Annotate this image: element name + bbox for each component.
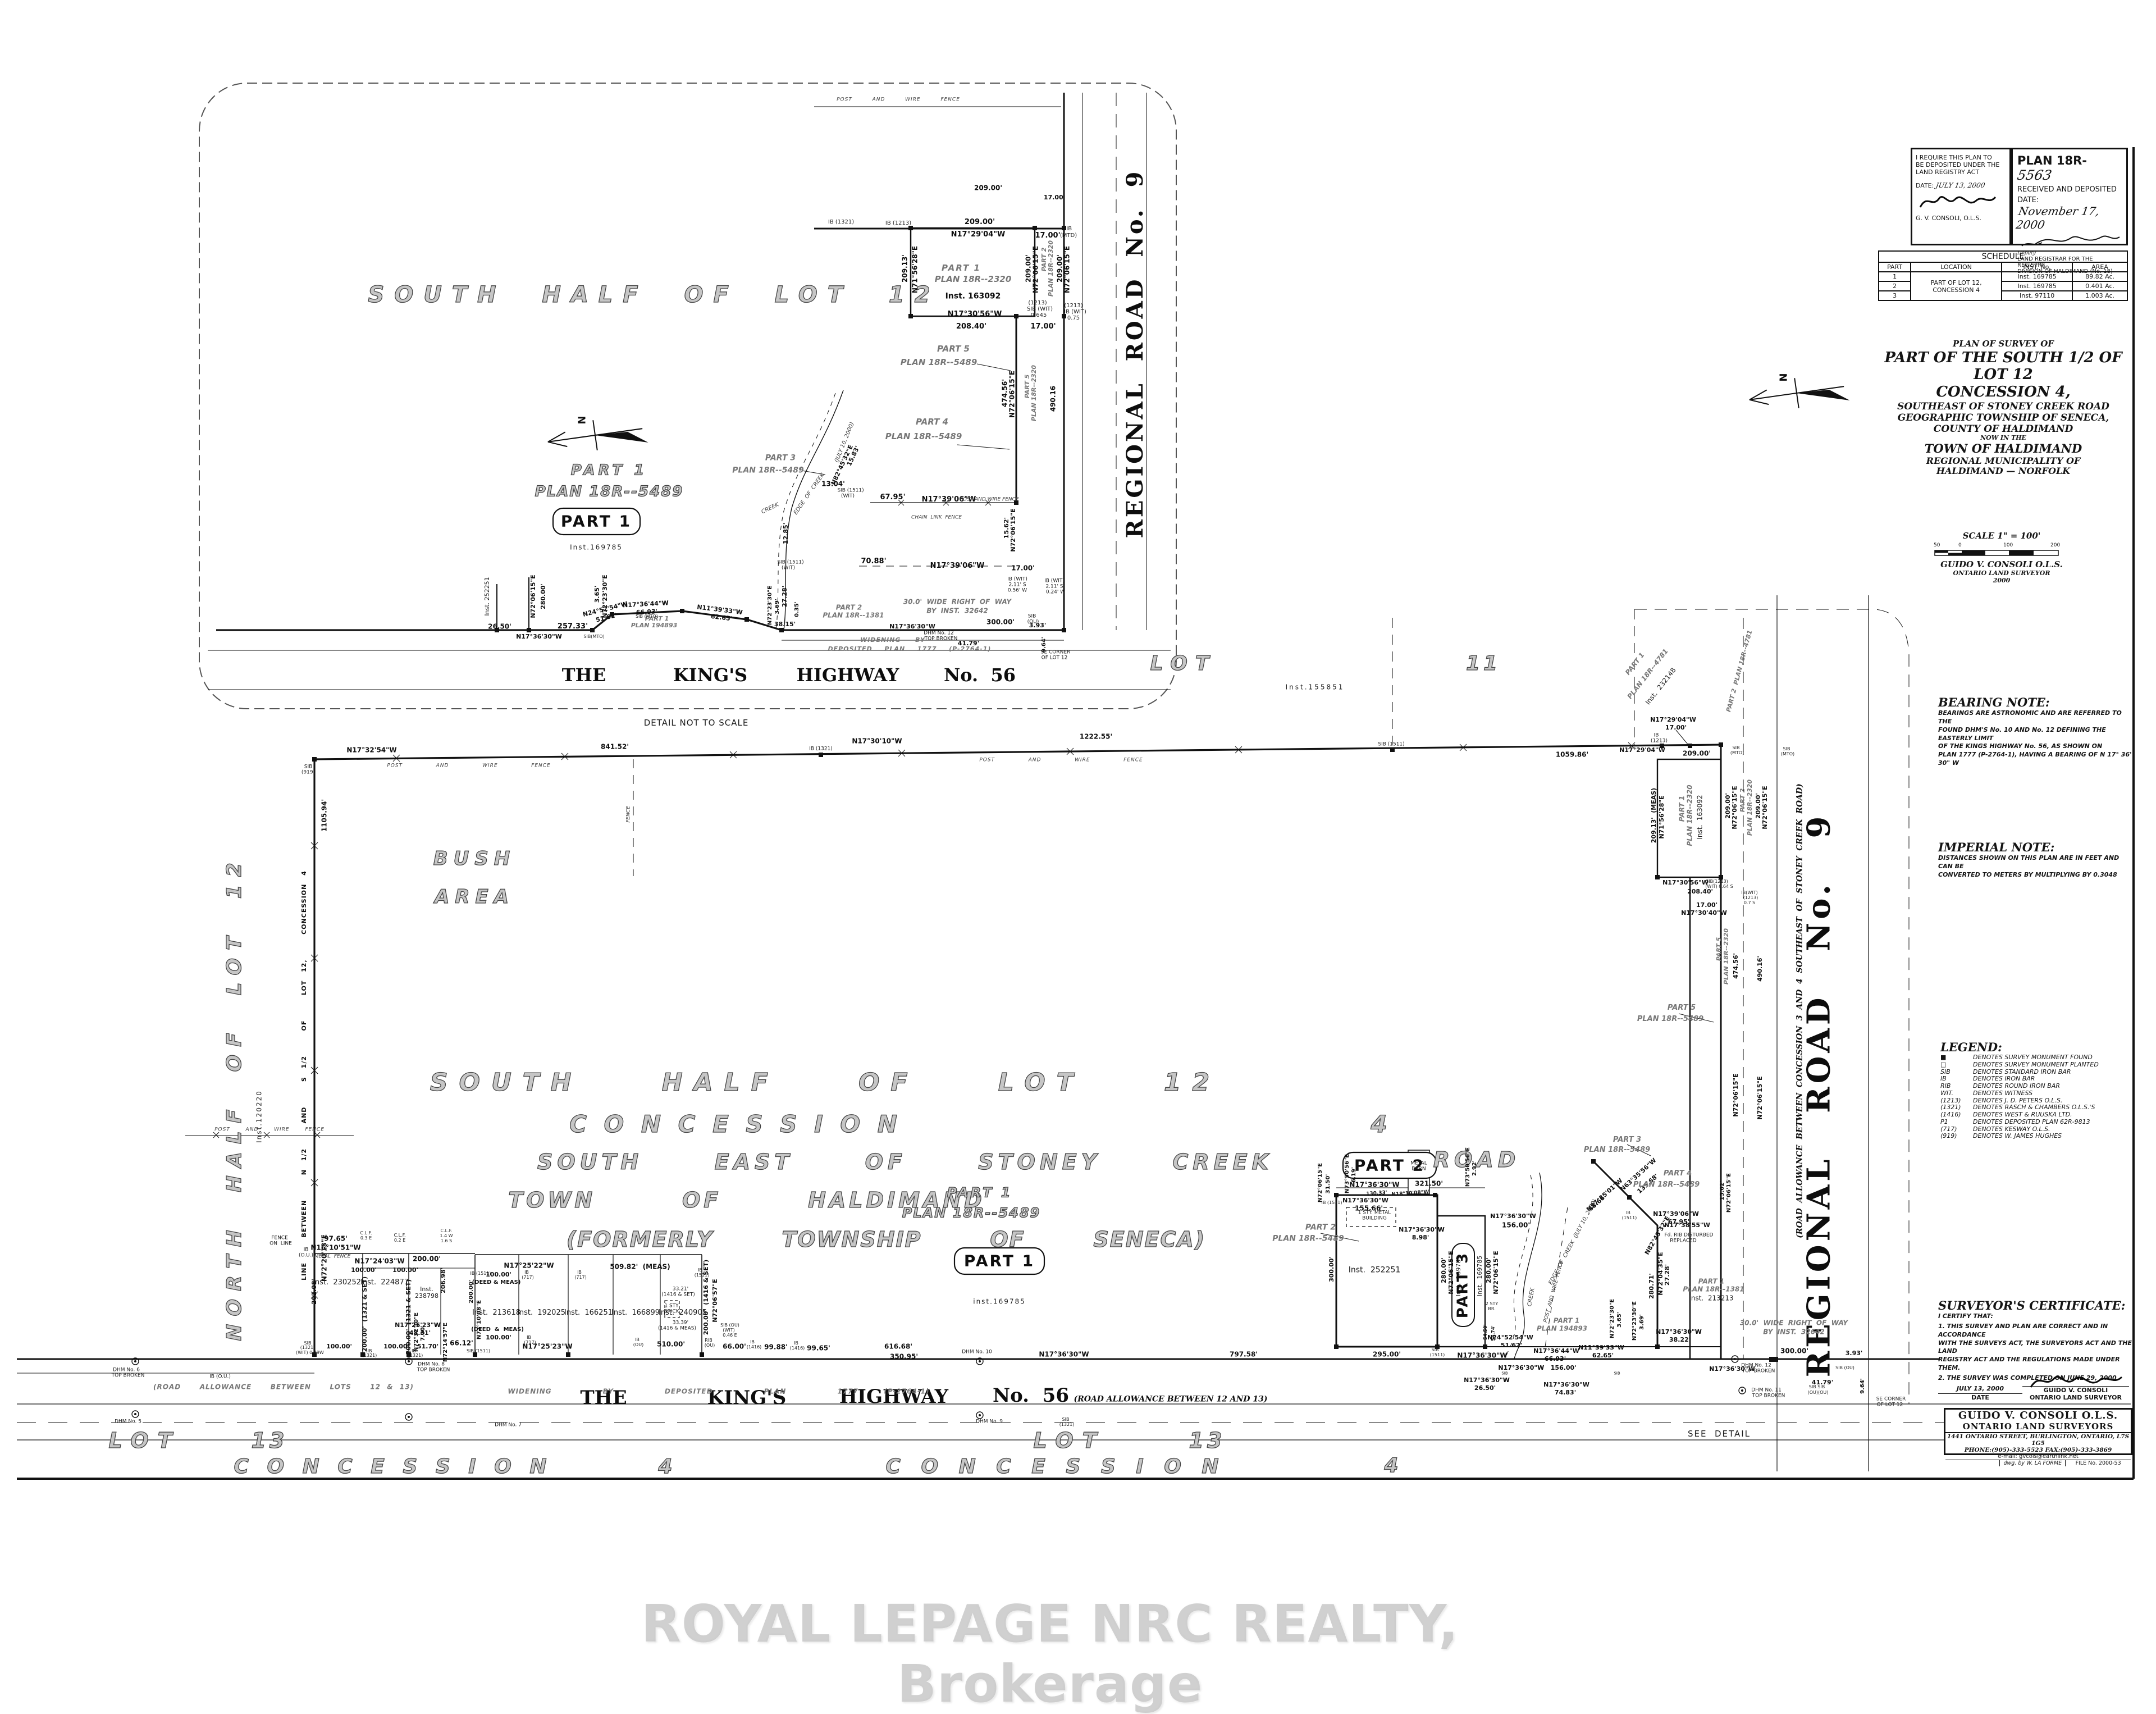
plan-label: (MTD) (1060, 233, 1077, 239)
plan-label: 51.62' (1501, 1342, 1522, 1349)
plan-label: (DEED & MEAS) (471, 1327, 524, 1333)
plan-label: (DEED & MEAS) (472, 1280, 521, 1286)
plan-label: (919) (302, 770, 315, 775)
plan-label: 200.00' (1416 & SET) (703, 1260, 710, 1335)
plan-label: 1059.86' (1556, 751, 1588, 759)
plan-label: TOP BROKEN (1752, 1393, 1785, 1398)
plan-label: 6.19' (1351, 1167, 1358, 1183)
plan-label: 0.24' W (1046, 590, 1065, 595)
plan-label: Inst. 166251 (564, 1309, 613, 1317)
plan-label: (FORMERLY TOWNSHIP OF SENECA) (567, 1229, 1205, 1251)
plan-label: AREA (435, 887, 514, 908)
plan-label: PLAN 18R--5489 (535, 484, 684, 499)
plan-label: N72°04'35"E (1657, 1252, 1664, 1295)
scale-tick: 50 (1934, 543, 1940, 548)
firm-dwg: dwg. by W. LA FORME (1999, 1460, 2065, 1466)
plan-label: PLAN 18R--2320 (1031, 365, 1038, 421)
plan-label: (1321) (362, 1353, 377, 1358)
plan-label: 295.00' (1373, 1351, 1401, 1359)
plan-label: ON LINE (269, 1241, 292, 1246)
plan-label: (1213) (1064, 303, 1082, 309)
plan-label: PART 1 (561, 513, 632, 529)
plan-label: 1.6 S (441, 1239, 452, 1243)
plan-label: LOT (108, 1430, 181, 1452)
schedule-panel: SCHEDULE PART LOCATION INST. No. AREA 1 … (1878, 250, 2128, 301)
plan-label: PLAN 18R--2320 (1048, 240, 1054, 297)
plan-label: 100.00' (383, 1343, 409, 1350)
plan-label: 156.00' (1502, 1222, 1530, 1229)
plan-label: 8.98' (1412, 1234, 1429, 1241)
plan-label: N17°30'40"W (1681, 910, 1727, 917)
certificate-intro: I CERTIFY THAT: (1938, 1312, 2132, 1321)
plan-label: SIB(MTO) (583, 635, 604, 639)
schedule-part: 3 (1879, 291, 1911, 300)
plan-label: PART 1 (571, 463, 648, 478)
firm-file: FILE No. 2000-53 (2065, 1460, 2131, 1466)
plan-label: 300.00' (986, 619, 1015, 626)
plan-label: (1416 & SET) (661, 1292, 695, 1297)
plan-label: Inst.155851 (1286, 684, 1345, 691)
plan-label: 70.88' (861, 558, 886, 566)
received-line: RECEIVED AND DEPOSITED (2017, 185, 2122, 194)
plan-label: N17°36'44"W (1533, 1348, 1579, 1355)
plan-label: 321.50' (1415, 1180, 1443, 1188)
plan-label: 300.00' (1780, 1348, 1808, 1355)
plan-label: (MTO) (1730, 751, 1744, 755)
plan-label: 67.95' (880, 494, 905, 502)
plan-label: PART 3 (1613, 1136, 1641, 1144)
plan-label: 209.00' (1025, 254, 1033, 282)
plan-label: 841.52' (601, 744, 629, 751)
plan-label: N72°06'15"E (1733, 1073, 1739, 1116)
legend-item: P1DENOTES DEPOSITED PLAN 62R-9813 (1940, 1119, 2131, 1126)
plan-label: PART 4 (1664, 1170, 1692, 1178)
plan-label: SIB (WIT) (1027, 307, 1053, 313)
plan-label: N17°30'10"W (852, 738, 902, 745)
plan-label: Inst. 252251 (1349, 1266, 1401, 1275)
plan-label: PLAN 18R--2320 (1687, 785, 1694, 846)
plan-label: 100.00' (326, 1343, 352, 1350)
plan-label: PART 2 (1739, 788, 1746, 813)
plan-label: (1511) (1622, 1216, 1637, 1220)
scale-year: 2000 (1909, 577, 2094, 584)
plan-label: N72°06'15"E (1064, 246, 1071, 293)
legend-text: DENOTES WITNESS (1973, 1090, 2032, 1097)
plan-label: THE (562, 666, 606, 685)
plan-label: N17°36'30"W 156.00' (1498, 1365, 1576, 1371)
plan-label: Inst. 213213 (1689, 1295, 1733, 1302)
plan-label: PLAN 18R--2320 (1747, 779, 1753, 836)
plan-label: PART 5 (1024, 375, 1031, 399)
plan-label: N72°23'30"E (768, 586, 774, 625)
plan-label: CHAIN LINK FENCE (911, 515, 962, 520)
plan-label: 1105.94' (321, 799, 328, 832)
plan-label: 0.35' (794, 601, 801, 617)
plan-label: SOUTH HALF OF LOT 12 (368, 283, 940, 307)
plan-label: 27.28' (782, 586, 788, 607)
plan-label: PART 5 (937, 345, 970, 354)
scale-block: SCALE 1" = 100' 50 0 100 200 GUIDO V. CO… (1909, 531, 2094, 584)
scale-firm: GUIDO V. CONSOLI O.L.S. (1909, 559, 2094, 569)
plan-label: PLAN 18R--1381 (1683, 1286, 1744, 1293)
plan-label: 509.82' (MEAS) (610, 1264, 670, 1271)
plan-label: Inst. 252251 (484, 577, 491, 616)
plan-label: No. 56 (944, 666, 1016, 685)
plan-label: PART 1 (1679, 796, 1686, 822)
plan-label: 100.00' (392, 1267, 418, 1274)
plan-label: PLAN 18R--2320 (935, 275, 1012, 284)
plan-label: N17°25'23"W (522, 1343, 572, 1351)
plan-label: (O.U.) (299, 1253, 313, 1258)
registrar-signature (2017, 231, 2124, 248)
bearing-note-line: FOUND DHM'S No. 10 AND No. 12 DEFINING T… (1938, 726, 2132, 743)
plan-label: PLAN 18R--5489 (902, 1206, 1041, 1220)
plan-label: 15.62' (1003, 517, 1010, 539)
plan-label: SIB (MTO) (636, 614, 658, 619)
plan-label: N16°10'51"W (310, 1245, 360, 1252)
firm-name: GUIDO V. CONSOLI O.L.S. (1945, 1410, 2131, 1421)
plan-label: 17.00' (1665, 724, 1687, 731)
plan-label: 280.71' (1648, 1273, 1655, 1299)
plan-label: N72°06'15"E (1033, 246, 1040, 293)
plan-label: Inst.120220 (256, 1090, 263, 1143)
plan-label: N71°56'28"E (1659, 795, 1665, 838)
plan-label: N73°50'56"E (1465, 1147, 1472, 1187)
plan-label: SIB (OU) (1835, 1366, 1854, 1370)
plan-label: N17°30'56"W (948, 311, 1002, 318)
plan-label: 474.56' (1002, 379, 1009, 407)
plan-label: 26.50' (488, 623, 511, 631)
plan-label: 66.93' (1545, 1356, 1566, 1362)
plan-label: 0.56' W (1008, 588, 1027, 593)
firm-phone: PHONE:(905)-333-5523 FAX:(905)-333-3869 (1945, 1447, 2131, 1453)
legend-text: DENOTES ROUND IRON BAR (1973, 1083, 2060, 1090)
plan-label: REGIONAL ROAD No. 9 (1803, 813, 1836, 1378)
plan-label: FENCE (626, 806, 631, 823)
plan-label: SIB (1511) (1378, 742, 1404, 747)
plan-label: 17.00' (1011, 565, 1035, 572)
schedule-inst: Inst. 97110 (2002, 291, 2072, 300)
plan-label: N71°56'28"E (912, 246, 919, 293)
legend-item: □DENOTES SURVEY MONUMENT PLANTED (1940, 1061, 2131, 1069)
plan-label: C O N C E S S I O N (886, 1456, 1226, 1478)
certificate-name2: ONTARIO LAND SURVEYOR (2022, 1394, 2129, 1401)
approval-date-label: DATE: (1916, 182, 1934, 189)
plan-number-hand: 5563 (2016, 167, 2053, 183)
plan-label: 51.70' (417, 1343, 438, 1350)
scale-label: SCALE 1" = 100' (1909, 531, 2094, 541)
received-date-hand: November 17, 2000 (2015, 204, 2124, 231)
plan-label: TOP BROKEN (417, 1367, 450, 1373)
plan-label: (ROAD ALLOWANCE BETWEEN LOTS 12 & 13) (153, 1384, 414, 1391)
legend-item: (919)DENOTES W. JAMES HUGHES (1940, 1133, 2131, 1140)
plan-label: Inst.169785 (570, 544, 623, 551)
legend-text: DENOTES SURVEY MONUMENT PLANTED (1973, 1061, 2099, 1069)
title-line: CONCESSION 4, (1880, 384, 2127, 401)
plan-label: TOP BROKEN (925, 636, 958, 641)
plan-label: 209.13' (902, 254, 909, 282)
plan-label: N17°39'06"W (930, 562, 985, 570)
legend-title: LEGEND: (1940, 1040, 2131, 1054)
plan-label: (WIT) 0.39W (296, 1351, 324, 1355)
plan-label: PLAN 18R--2320 (1723, 928, 1730, 984)
plan-label: 15.62' (1720, 1181, 1726, 1201)
bearing-note: BEARING NOTE: BEARINGS ARE ASTRONOMIC AN… (1938, 695, 2132, 768)
approval-date: JULY 13, 2000 (1935, 181, 1986, 189)
plan-label: N72°06'15"E (1762, 786, 1769, 829)
plan-label: N17°36'30"W (1039, 1351, 1089, 1359)
legend-symbol: P1 (1940, 1119, 1973, 1126)
plan-label: N72°06'15"E (1493, 1251, 1500, 1294)
plan-label: 209.13' (MEAS) (1651, 788, 1657, 843)
plan-label: 208.40' (956, 323, 986, 331)
plan-label: 41.79' (958, 640, 979, 647)
firm-sub: ONTARIO LAND SURVEYORS (1945, 1421, 2131, 1432)
plan-label: N72°10'08"E (477, 1300, 483, 1339)
plan-label: (OU) (633, 1343, 643, 1347)
plan-label: N17°39'06"W (1653, 1211, 1699, 1218)
schedule-area: 0.401 Ac. (2072, 281, 2127, 291)
plan-label: (717) (522, 1275, 534, 1280)
surveyor-signature (1916, 189, 2000, 213)
title-line: PART OF THE SOUTH 1/2 OF LOT 12 (1880, 349, 2127, 384)
plan-label: 200.00' (1321 & SET) (362, 1277, 368, 1352)
plan-label: IB (1511) (1322, 1201, 1342, 1205)
plan-label: IB (1321) (828, 220, 854, 226)
plan-label: 490.16' (1757, 956, 1764, 982)
plan-label: PART 3 (1455, 1252, 1470, 1319)
plan-label: (1416) (747, 1345, 762, 1350)
plan-label: 17.00' (1044, 194, 1065, 201)
schedule-header-row: PART LOCATION INST. No. AREA (1879, 262, 2127, 272)
legend-symbol: (919) (1940, 1133, 1973, 1140)
plan-label: 41.79' (1812, 1379, 1833, 1386)
plan-label: 100.00' (486, 1271, 511, 1278)
certificate-date-label: DATE (1938, 1393, 2022, 1401)
legend-item: (1416)DENOTES WEST & RUUSKA LTD. (1940, 1111, 2131, 1119)
schedule-header: LOCATION (1911, 262, 2002, 272)
title-line: REGIONAL MUNICIPALITY OF (1880, 456, 2127, 467)
plan-label: PART 1 (964, 1252, 1035, 1269)
plan-label: N72°23'30"E (1610, 1299, 1616, 1338)
plan-label: (1321) (408, 1353, 423, 1358)
plan-label: PART 3 (765, 454, 796, 463)
approval-signer: G. V. CONSOLI, O.L.S. (1916, 215, 2006, 222)
plan-label: SEE DETAIL (1688, 1430, 1751, 1439)
plan-label: N (1779, 373, 1790, 381)
certificate-date: JULY 13, 2000 (1938, 1385, 2022, 1393)
legend-items: ■DENOTES SURVEY MONUMENT FOUND□DENOTES S… (1940, 1054, 2131, 1140)
plan-label: 797.58' (1230, 1351, 1258, 1359)
legend-item: SIBDENOTES STANDARD IRON BAR (1940, 1069, 2131, 1076)
imperial-note-line: DISTANCES SHOWN ON THIS PLAN ARE IN FEET… (1938, 854, 2132, 871)
schedule-header: PART (1879, 262, 1911, 272)
plan-label: 30.0' WIDE RIGHT OF WAY (1740, 1320, 1848, 1327)
firm-address: 1441 ONTARIO STREET, BURLINGTON, ONTARIO… (1945, 1433, 2131, 1447)
plan-label: POST AND WIRE FENCE (979, 758, 1143, 763)
plan-label: 209.00' (1725, 793, 1732, 819)
title-line: GEOGRAPHIC TOWNSHIP OF SENECA, (1880, 412, 2127, 423)
plan-label: PART 1 (1698, 1278, 1724, 1285)
plan-label: N72°06'15"E (1318, 1163, 1324, 1202)
plan-label: N17°36'30"W (1490, 1213, 1536, 1220)
plan-label: PART 1 (942, 264, 981, 273)
certificate-item: 1. THIS SURVEY AND PLAN ARE CORRECT AND … (1938, 1323, 2132, 1339)
plan-label: N17°36'30"W (1464, 1377, 1510, 1384)
plan-label: 4 (1384, 1455, 1398, 1476)
legend-item: WIT.DENOTES WITNESS (1940, 1090, 2131, 1097)
plan-label: WIDENING BY (860, 637, 925, 644)
plan-label: N72°06'15"E (1010, 508, 1017, 551)
plan-label: 38.15' (774, 621, 796, 628)
plan-label: SIB (1063, 226, 1072, 233)
plan-label: N73°50'56"E (1345, 1154, 1351, 1193)
plan-label: 206.98' (440, 1268, 447, 1293)
scale-tick: 0 (1958, 543, 1962, 548)
plan-label: 474.56' (1733, 953, 1739, 979)
plan-label: Inst. 163092 (945, 293, 1001, 301)
schedule-header: INST. No. (2002, 262, 2072, 272)
title-line: NOW IN THE (1880, 435, 2127, 442)
plan-label: 67.95' (1668, 1219, 1689, 1225)
plan-label: PLAN 18R--5489 (1272, 1235, 1344, 1243)
plan-label: PLAN 18R--5489 (1584, 1146, 1650, 1154)
plan-label: (OU)(OU) (1808, 1391, 1829, 1395)
plan-label: PART 2 (1305, 1224, 1336, 1232)
schedule-table: PART LOCATION INST. No. AREA 1 PART OF L… (1878, 262, 2128, 301)
plan-label: (1213) (1651, 739, 1668, 744)
plan-label: 62.65' (1592, 1352, 1614, 1359)
plan-label: 2.92' (1472, 1160, 1478, 1176)
plan-label: (1213) (1028, 300, 1047, 307)
plan-label: IB (1213) (885, 221, 911, 227)
plan-label: (WIT) (782, 566, 795, 571)
plan-label: 490.16 (1050, 386, 1057, 412)
plan-label: SIB (1511) (467, 1349, 490, 1353)
plan-label: N17°36'30"W (1457, 1352, 1507, 1360)
legend-symbol: □ (1940, 1061, 1973, 1069)
plan-label: NORTH HALF OF LOT 12 (224, 855, 245, 1341)
plan-label: 12.85' (783, 523, 789, 544)
scale-bar-graphic (1909, 549, 2094, 558)
bearing-note-line: BEARINGS ARE ASTRONOMIC AND ARE REFERRED… (1938, 709, 2132, 726)
plan-label: N72°06'57"E (712, 1279, 719, 1322)
plan-label: Inst. 230252 (313, 1279, 361, 1287)
schedule-location-line: CONCESSION 4 (1913, 286, 1999, 294)
plan-label: LOT (1150, 653, 1217, 674)
plan-label: 97.65' (324, 1236, 348, 1243)
bearing-note-line: PLAN 1777 (P-2764-1), HAVING A BEARING O… (1938, 751, 2132, 768)
plan-label: N17°25'23"W (395, 1322, 441, 1329)
plan-label: 66.12' (450, 1340, 473, 1347)
plan-label: 616.68' (884, 1343, 912, 1351)
title-line: TOWN OF HALDIMAND (1880, 442, 2127, 456)
plan-label: 66.00' (723, 1343, 746, 1351)
plan-label: DETAIL NOT TO SCALE (644, 719, 749, 728)
plan-label: N72°06'15"E (1009, 371, 1016, 418)
plan-label: REGIONAL ROAD No. 9 (1123, 170, 1147, 539)
plan-label: PART 5 (1716, 937, 1723, 961)
plan-label: 99.65' (807, 1345, 830, 1352)
plan-label: 0.75 (1067, 316, 1080, 322)
legend-text: DENOTES W. JAMES HUGHES (1973, 1133, 2062, 1140)
plan-label: BY INST. 32642 (1763, 1329, 1825, 1336)
imperial-note: IMPERIAL NOTE: DISTANCES SHOWN ON THIS P… (1938, 840, 2132, 879)
plan-label: BY INST. 32642 (926, 608, 988, 615)
plan-label: N17°30'56"W (1662, 879, 1709, 886)
plan-label: N17°36'30"W (1342, 1197, 1388, 1204)
plan-label: BR. (1488, 1307, 1495, 1311)
legend-item: ■DENOTES SURVEY MONUMENT FOUND (1940, 1054, 2131, 1061)
plan-label: (717) (574, 1275, 587, 1280)
plan-label: 209.00' (974, 185, 1002, 192)
plan-label: 3.69' (775, 599, 781, 614)
plan-label: N24°52'54"W (1487, 1334, 1533, 1341)
plan-number-prefix: PLAN 18R- (2017, 154, 2087, 167)
plan-label: DHM No. 7 (495, 1423, 522, 1428)
plan-label: PLAN 194893 (1537, 1325, 1587, 1333)
legend-symbol: RIB (1940, 1083, 1973, 1090)
schedule-header: AREA (2072, 262, 2127, 272)
plan-label: 100.00' (486, 1334, 511, 1341)
plan-label: 27.28' (1664, 1264, 1671, 1285)
plan-label: 257.33' (558, 623, 588, 631)
plan-label: LINE BETWEEN N 1/2 AND S 1/2 OF LOT 12, … (301, 870, 308, 1280)
plan-label: (1321) (1059, 1423, 1075, 1427)
plan-label: 4 (1371, 1112, 1387, 1137)
plan-label: inst.169785 (973, 1298, 1026, 1306)
plan-label: 100.00' (351, 1267, 377, 1274)
plan-label: 280.00' (1486, 1257, 1492, 1283)
plan-label: 209.00' (965, 218, 995, 226)
legend-item: RIBDENOTES ROUND IRON BAR (1940, 1083, 2131, 1090)
plan-label: N72°23'30"E (1632, 1301, 1638, 1341)
legend-text: DENOTES DEPOSITED PLAN 62R-9813 (1973, 1119, 2090, 1126)
plan-label: PLAN 18R--1381 (823, 612, 884, 619)
plan-title-block: PLAN OF SURVEY OF PART OF THE SOUTH 1/2 … (1880, 339, 2127, 477)
approval-line: LAND REGISTRY ACT (1916, 168, 2006, 176)
bearing-note-title: BEARING NOTE: (1938, 695, 2132, 709)
plan-label: N11°39'33"W (1578, 1344, 1624, 1351)
plan-label: 0.3 E (360, 1236, 372, 1241)
plan-label: PART 2 (836, 604, 862, 612)
received-date-label: DATE: (2017, 196, 2039, 204)
approval-box: I REQUIRE THIS PLAN TO BE DEPOSITED UNDE… (1911, 148, 2011, 245)
plan-label: HIGHWAY (797, 666, 899, 685)
plan-label: 1222.55' (1080, 733, 1112, 741)
plan-label: 13 (1189, 1430, 1226, 1452)
plan-label: N72°06'15"E (1726, 1173, 1733, 1212)
plan-label: N17°24'03"W (354, 1258, 404, 1265)
plan-label: LOT (1033, 1430, 1106, 1452)
plan-label: 0.2 E (394, 1238, 405, 1243)
plan-label: 208.40' (1687, 888, 1713, 895)
north-arrow-icon (546, 413, 648, 457)
plan-label: N17°36'30"W (1656, 1329, 1702, 1335)
plan-label: BUSH (433, 849, 515, 869)
plan-label: 280.00' (1441, 1257, 1447, 1283)
plan-label: Inst. 169785 (1477, 1256, 1483, 1297)
plan-label: N17°36'30"W (889, 623, 935, 630)
plan-label: BUILDING (1362, 1216, 1387, 1221)
plan-label: N72°06'15"E (1757, 1076, 1764, 1119)
plan-label: 3.65' (1617, 1312, 1623, 1328)
plan-label: (WIT) 0.64 S (1705, 885, 1733, 889)
plan-label: POST AND WIRE FENCE (214, 1127, 325, 1132)
plan-label: 300.00' (1328, 1256, 1335, 1282)
plan-label: 0.46 E (723, 1333, 737, 1338)
plan-label: 350.95' (890, 1353, 918, 1361)
